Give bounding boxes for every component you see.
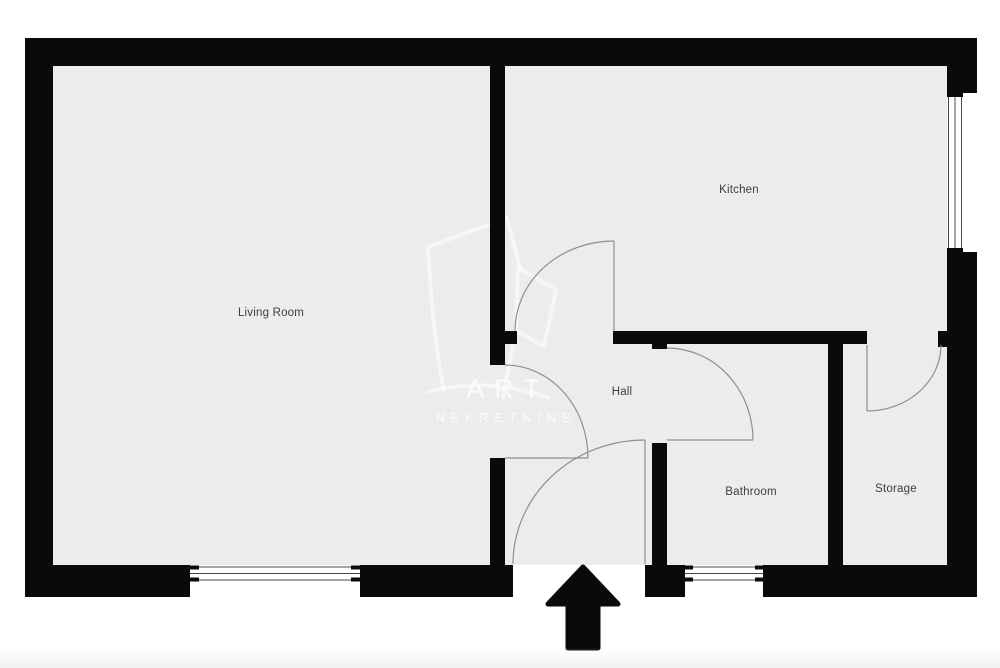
wall-livingroom-divider-lower [490,458,505,565]
window-gap [685,565,763,597]
room-label-living-room: Living Room [238,307,304,319]
wall-bottom-right [763,565,977,597]
window-living-room [190,565,360,597]
wall-bottom-stub [645,565,685,597]
wall-left [25,38,53,597]
wall-bathroom-left [652,443,667,565]
room-label-storage: Storage [875,483,917,495]
wall-right-main [947,252,977,597]
floorplan-drawing [0,0,1000,668]
entrance-arrow-icon [548,567,618,648]
wall-right-top [947,38,977,93]
wall-livingroom-divider [490,38,505,365]
wall-hall-stub-left [490,331,517,344]
room-label-kitchen: Kitchen [719,184,759,196]
room-label-bathroom: Bathroom [725,486,776,498]
bottom-fade [0,648,1000,668]
window-gap [190,565,360,597]
wall-bottom-mid [360,565,513,597]
window-kitchen [947,93,977,252]
wall-storage-stub-right [938,331,947,347]
window-bathroom [685,565,763,597]
wall-bathroom-stub [652,343,667,349]
room-label-hall: Hall [612,386,633,398]
wall-bottom-left [25,565,190,597]
floorplan: Living Room Kitchen Hall Bathroom Storag… [0,0,1000,668]
wall-bathroom-storage-divider [828,331,843,565]
